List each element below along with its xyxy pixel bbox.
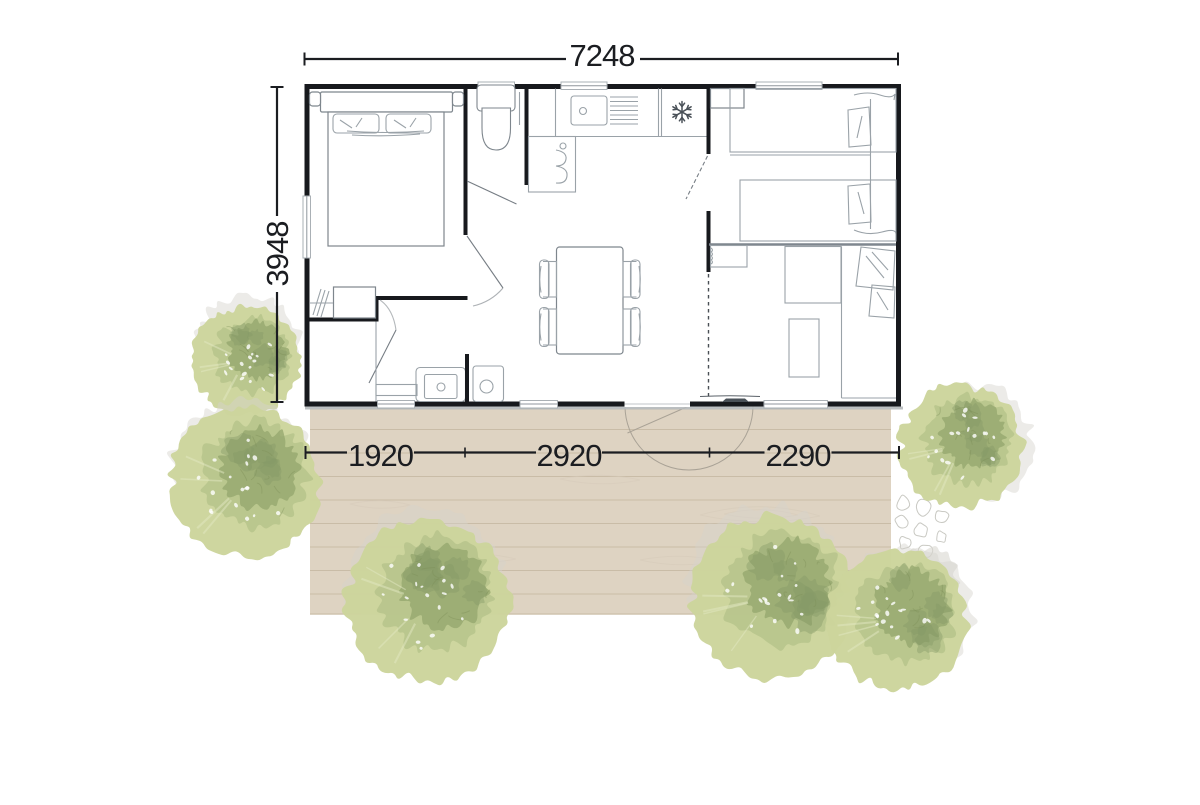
- svg-text:7248: 7248: [570, 38, 635, 73]
- svg-text:3948: 3948: [260, 222, 295, 287]
- svg-text:1920: 1920: [348, 438, 414, 473]
- svg-text:2290: 2290: [766, 438, 832, 473]
- svg-text:2920: 2920: [537, 438, 603, 473]
